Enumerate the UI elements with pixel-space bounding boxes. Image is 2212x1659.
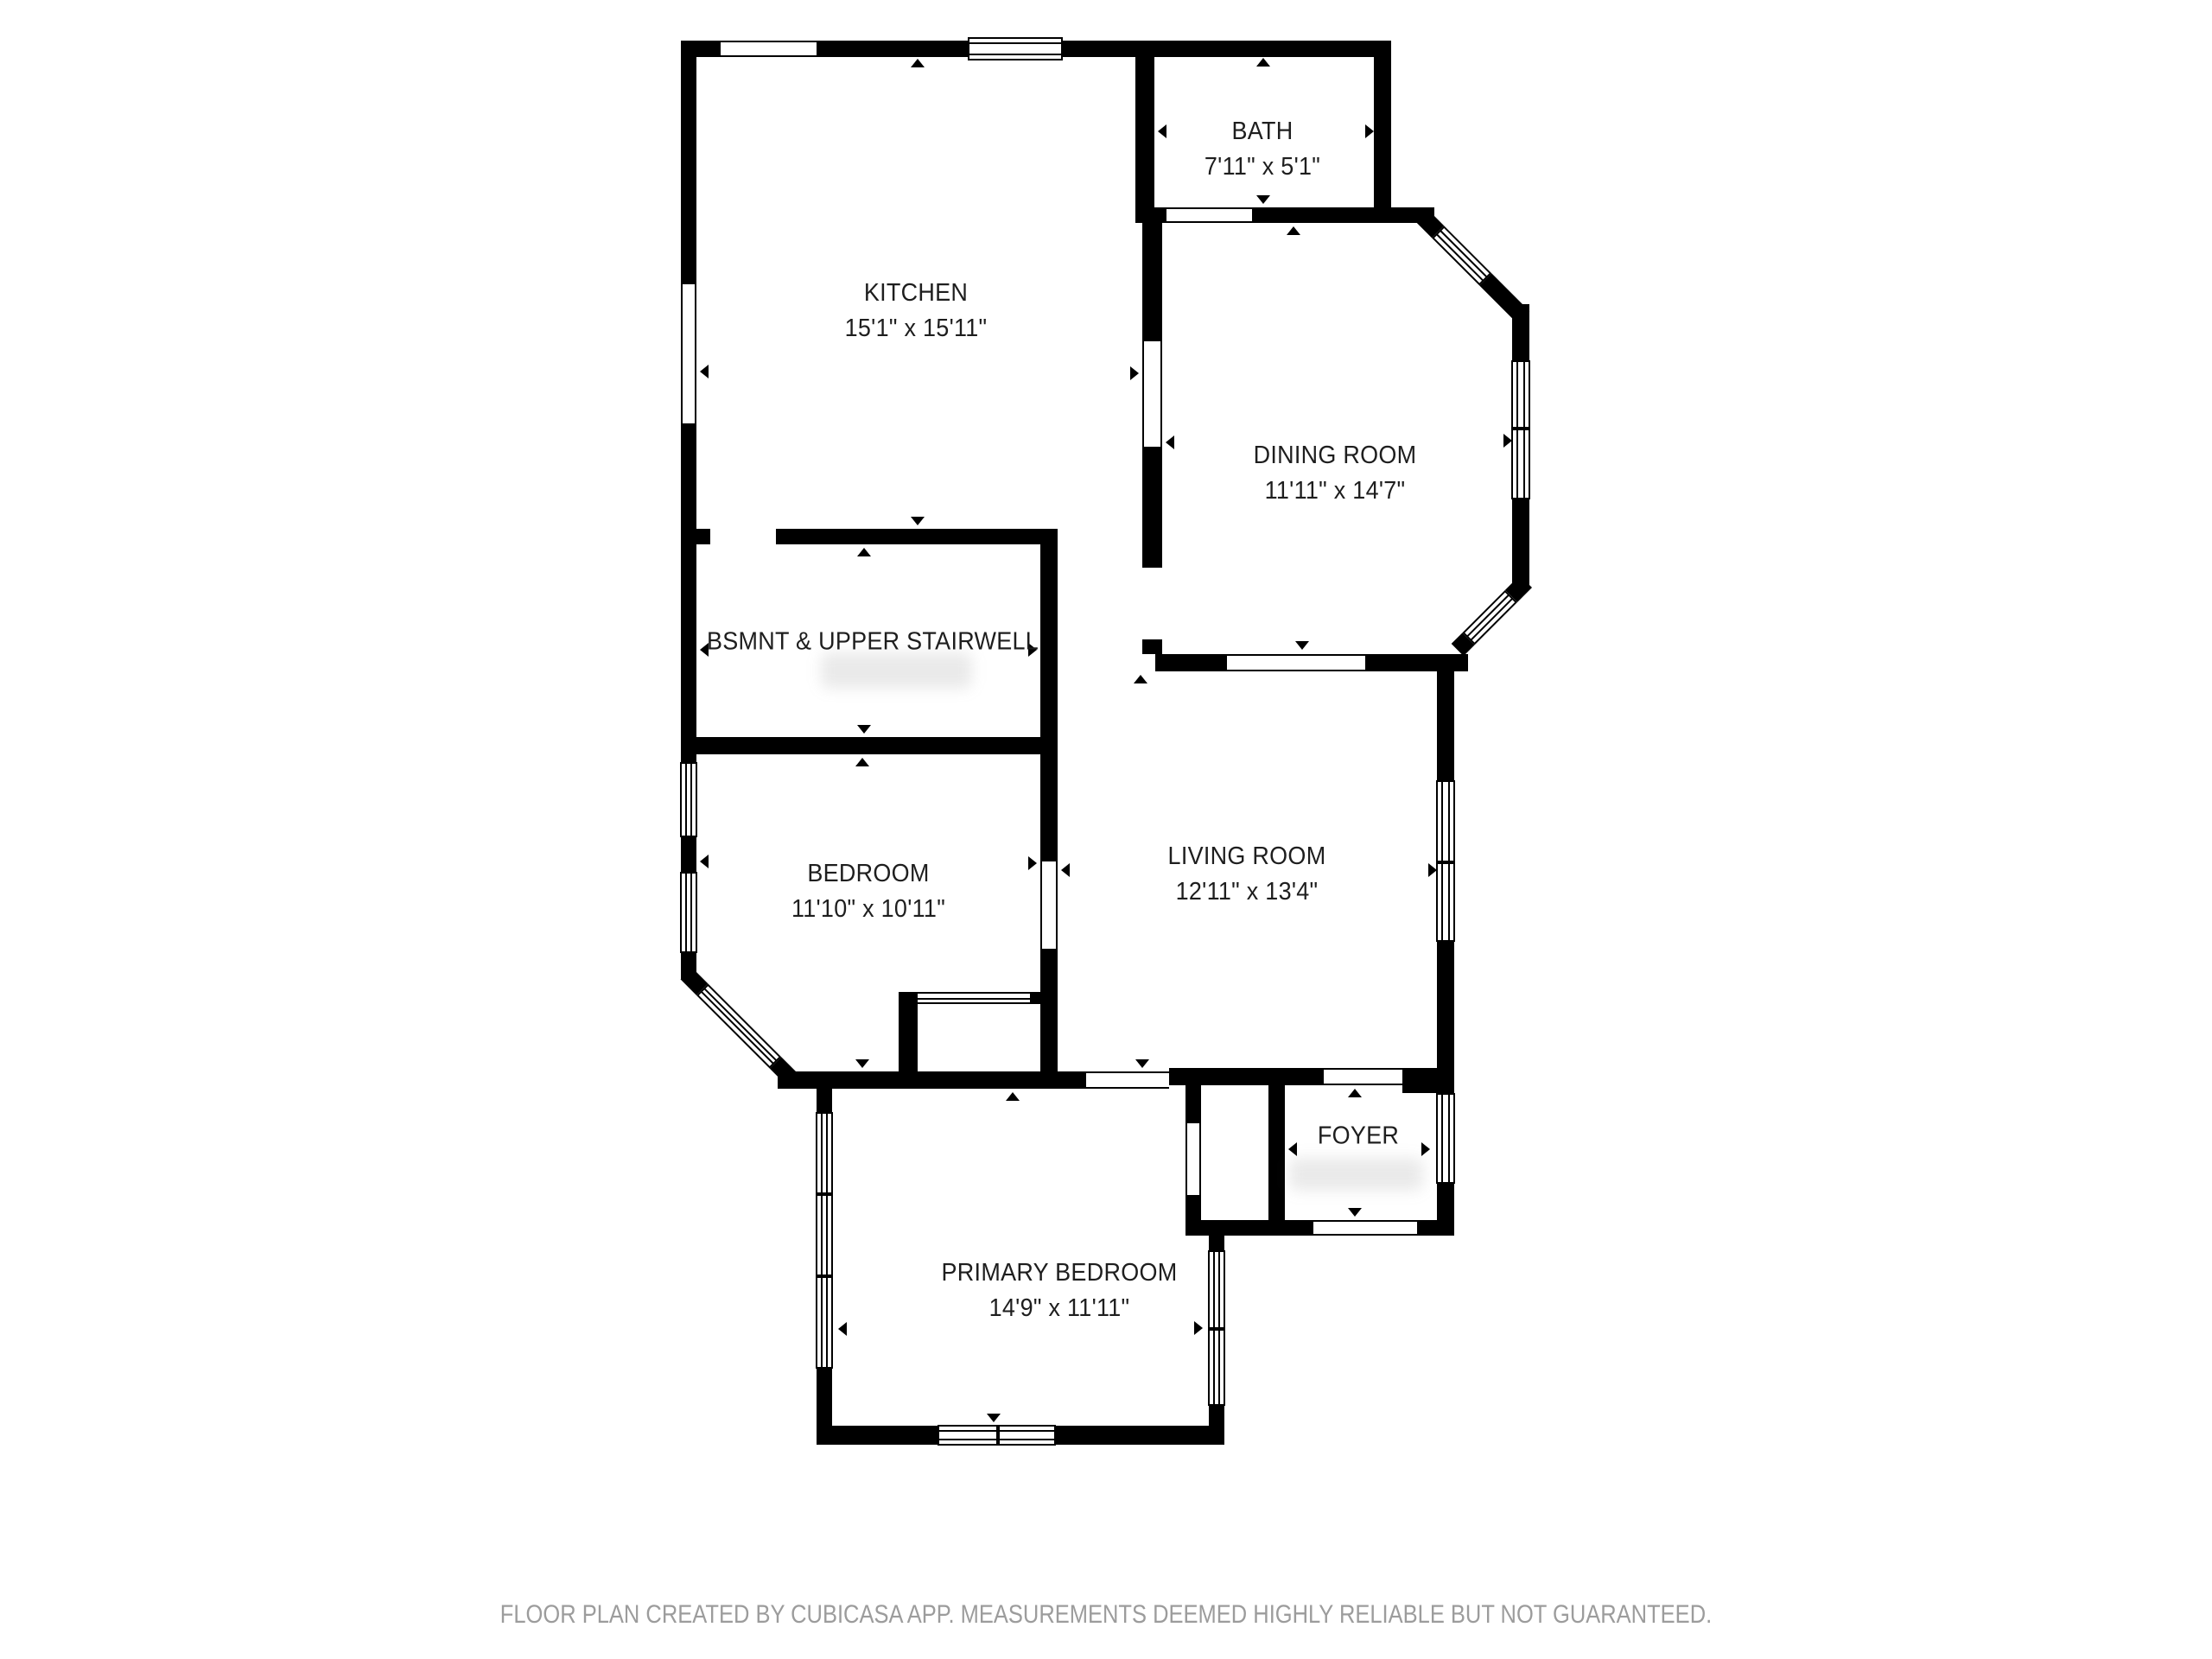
floor-plan: BATH 7'11" x 5'1" KITCHEN 15'1" x 15'11"… bbox=[0, 0, 2212, 1659]
window-glass-line bbox=[1441, 1094, 1450, 1183]
wall bbox=[1209, 1236, 1224, 1250]
wall bbox=[899, 992, 918, 1071]
window bbox=[1436, 780, 1455, 862]
door-opening bbox=[1040, 861, 1058, 949]
wall bbox=[1185, 1195, 1201, 1220]
window-glass-line bbox=[821, 1277, 828, 1368]
closet-sliding-door bbox=[918, 992, 1030, 1004]
wall bbox=[1437, 942, 1454, 1068]
wall bbox=[1402, 1068, 1454, 1093]
window bbox=[816, 1112, 833, 1194]
window bbox=[1208, 1250, 1225, 1329]
window-glass-line bbox=[685, 873, 692, 952]
wall bbox=[1063, 41, 1391, 57]
door-opening bbox=[1227, 654, 1365, 671]
measure-arrow-left-icon bbox=[838, 1322, 847, 1336]
measure-arrow-down-icon bbox=[855, 1059, 869, 1068]
room-label-kitchen: KITCHEN 15'1" x 15'11" bbox=[845, 276, 988, 346]
measure-arrow-left-icon bbox=[1158, 124, 1166, 138]
wall bbox=[817, 1087, 832, 1112]
window bbox=[1436, 862, 1455, 942]
door-opening bbox=[1166, 207, 1252, 223]
window-glass-line bbox=[1441, 781, 1450, 861]
window-glass-line bbox=[999, 1430, 1055, 1440]
measure-arrow-right-icon bbox=[1365, 124, 1374, 138]
room-name: LIVING ROOM bbox=[1168, 839, 1326, 874]
wall bbox=[1135, 57, 1154, 207]
measure-arrow-down-icon bbox=[1295, 641, 1309, 650]
room-dims: 7'11" x 5'1" bbox=[1205, 149, 1320, 185]
wall bbox=[1155, 654, 1227, 671]
window bbox=[1462, 590, 1517, 645]
window-glass-line bbox=[685, 763, 692, 836]
diagonal-wall bbox=[681, 968, 801, 1088]
room-name: BEDROOM bbox=[791, 856, 945, 892]
footer-disclaimer: FLOOR PLAN CREATED BY CUBICASA APP. MEAS… bbox=[500, 1600, 1712, 1630]
room-name: KITCHEN bbox=[845, 276, 988, 311]
wall bbox=[778, 1071, 1086, 1089]
window-glass-line bbox=[701, 988, 777, 1064]
room-dims: 11'10" x 10'11" bbox=[791, 892, 945, 927]
wall bbox=[1135, 207, 1166, 223]
door-opening bbox=[1324, 1068, 1402, 1085]
wall bbox=[1030, 992, 1040, 1004]
wall bbox=[817, 1426, 938, 1445]
room-label-living: LIVING ROOM 12'11" x 13'4" bbox=[1168, 839, 1326, 910]
window-glass-line bbox=[938, 1430, 997, 1440]
wall bbox=[1142, 447, 1162, 568]
measure-arrow-up-icon bbox=[1256, 58, 1270, 67]
door-opening bbox=[1185, 1123, 1201, 1195]
window-glass-line bbox=[1516, 429, 1525, 499]
measure-arrow-down-icon bbox=[1256, 195, 1270, 204]
measure-arrow-right-icon bbox=[1130, 366, 1139, 380]
measure-arrow-down-icon bbox=[1348, 1208, 1362, 1217]
measure-arrow-down-icon bbox=[911, 517, 925, 525]
watermark-blur bbox=[1289, 1158, 1423, 1191]
room-dims: 12'11" x 13'4" bbox=[1168, 874, 1326, 910]
window-glass-line bbox=[1213, 1251, 1220, 1328]
measure-arrow-right-icon bbox=[1194, 1321, 1203, 1335]
room-label-bedroom: BEDROOM 11'10" x 10'11" bbox=[791, 856, 945, 927]
window-glass-line bbox=[969, 42, 1062, 55]
window bbox=[968, 37, 1063, 60]
room-label-foyer: FOYER bbox=[1318, 1119, 1399, 1154]
room-dims: 14'9" x 11'11" bbox=[942, 1291, 1178, 1326]
measure-arrow-down-icon bbox=[1135, 1059, 1149, 1068]
window-glass-line bbox=[821, 1113, 828, 1193]
window bbox=[816, 1194, 833, 1276]
wall bbox=[681, 836, 696, 873]
window bbox=[816, 1276, 833, 1369]
wall bbox=[1437, 671, 1454, 780]
wall bbox=[1040, 529, 1058, 737]
wall bbox=[1479, 273, 1529, 323]
room-name: BSMNT & UPPER STAIRWELL bbox=[707, 625, 1039, 660]
door-opening bbox=[1086, 1071, 1169, 1089]
wall bbox=[1142, 639, 1162, 654]
window bbox=[1432, 226, 1491, 285]
measure-arrow-up-icon bbox=[1006, 1092, 1020, 1101]
window-glass-line bbox=[1213, 1330, 1220, 1405]
wall bbox=[1040, 754, 1058, 861]
window-glass-line bbox=[1466, 594, 1513, 641]
measure-arrow-left-icon bbox=[700, 855, 709, 868]
measure-arrow-left-icon bbox=[700, 365, 709, 378]
measure-arrow-up-icon bbox=[911, 59, 925, 67]
door-opening bbox=[1142, 341, 1162, 447]
measure-arrow-up-icon bbox=[1287, 226, 1300, 235]
wall bbox=[696, 529, 710, 544]
wall bbox=[681, 737, 1058, 754]
room-name: FOYER bbox=[1318, 1119, 1399, 1154]
measure-arrow-right-icon bbox=[1028, 856, 1037, 870]
window bbox=[680, 872, 697, 953]
window-glass-line bbox=[1436, 230, 1487, 281]
measure-arrow-right-icon bbox=[1421, 1142, 1430, 1156]
measure-arrow-up-icon bbox=[1134, 675, 1147, 683]
window bbox=[938, 1425, 998, 1446]
window-glass-line bbox=[1516, 361, 1525, 428]
room-name: BATH bbox=[1205, 114, 1320, 149]
wall bbox=[1185, 1220, 1313, 1236]
window-glass-line bbox=[1441, 863, 1450, 941]
measure-arrow-left-icon bbox=[1166, 435, 1174, 449]
sliding-door-line bbox=[918, 998, 1030, 1000]
window bbox=[998, 1425, 1056, 1446]
wall bbox=[1252, 207, 1434, 223]
room-label-stairwell: BSMNT & UPPER STAIRWELL bbox=[707, 625, 1039, 660]
diagonal-wall bbox=[1414, 207, 1529, 323]
door-opening bbox=[1313, 1220, 1417, 1236]
measure-arrow-up-icon bbox=[855, 758, 869, 766]
wall bbox=[776, 529, 1056, 544]
window bbox=[681, 283, 696, 425]
wall bbox=[1417, 1220, 1454, 1236]
wall bbox=[1056, 1426, 1224, 1445]
wall bbox=[1040, 949, 1058, 1071]
window bbox=[1436, 1093, 1455, 1184]
window bbox=[1208, 1329, 1225, 1406]
wall bbox=[1268, 1071, 1285, 1236]
measure-arrow-down-icon bbox=[987, 1414, 1001, 1422]
wall bbox=[1185, 1071, 1201, 1123]
measure-arrow-right-icon bbox=[1428, 863, 1437, 877]
measure-arrow-up-icon bbox=[1348, 1089, 1362, 1097]
wall bbox=[1209, 1406, 1224, 1445]
wall bbox=[1142, 223, 1162, 341]
window-glass-line bbox=[821, 1195, 828, 1275]
window bbox=[696, 983, 781, 1068]
measure-arrow-up-icon bbox=[857, 548, 871, 556]
room-dims: 11'11" x 14'7" bbox=[1254, 474, 1417, 509]
wall bbox=[681, 41, 696, 283]
window bbox=[1511, 360, 1530, 429]
wall bbox=[1365, 654, 1468, 671]
window bbox=[719, 41, 818, 57]
diagonal-wall bbox=[1452, 575, 1532, 656]
window bbox=[1511, 429, 1530, 499]
measure-arrow-right-icon bbox=[1503, 434, 1512, 448]
wall bbox=[1374, 54, 1391, 207]
window bbox=[680, 762, 697, 837]
measure-arrow-down-icon bbox=[857, 725, 871, 734]
room-name: DINING ROOM bbox=[1254, 438, 1417, 474]
room-label-primary: PRIMARY BEDROOM 14'9" x 11'11" bbox=[942, 1255, 1178, 1326]
room-label-bath: BATH 7'11" x 5'1" bbox=[1205, 114, 1320, 185]
wall bbox=[681, 425, 696, 762]
room-name: PRIMARY BEDROOM bbox=[942, 1255, 1178, 1291]
measure-arrow-left-icon bbox=[1061, 863, 1070, 877]
wall bbox=[818, 41, 968, 57]
room-dims: 15'1" x 15'11" bbox=[845, 311, 988, 346]
room-label-dining: DINING ROOM 11'11" x 14'7" bbox=[1254, 438, 1417, 509]
measure-arrow-left-icon bbox=[1288, 1142, 1297, 1156]
